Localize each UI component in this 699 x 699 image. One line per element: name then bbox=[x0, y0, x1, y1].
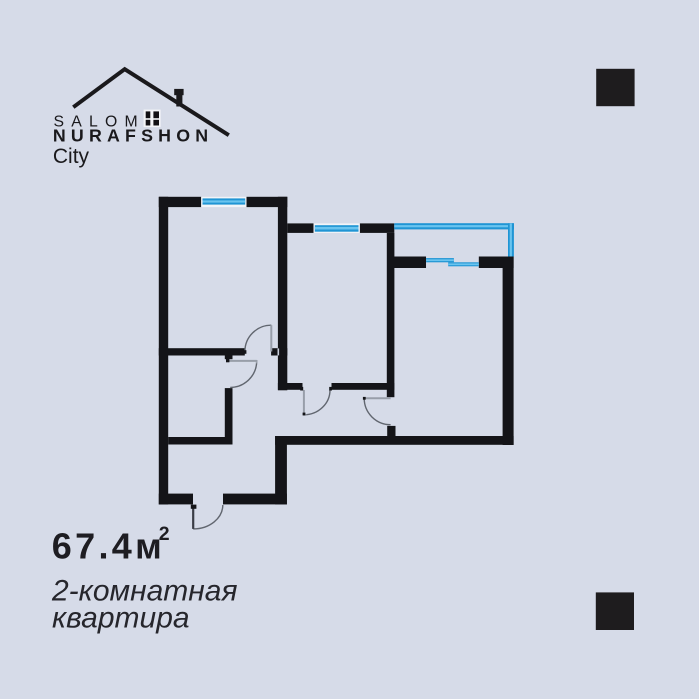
svg-text:67.4м: 67.4м bbox=[52, 526, 165, 567]
svg-text:NURAFSHON: NURAFSHON bbox=[53, 126, 213, 146]
svg-text:2: 2 bbox=[159, 523, 170, 545]
svg-text:City: City bbox=[53, 145, 90, 168]
svg-text:квартира: квартира bbox=[52, 602, 190, 635]
